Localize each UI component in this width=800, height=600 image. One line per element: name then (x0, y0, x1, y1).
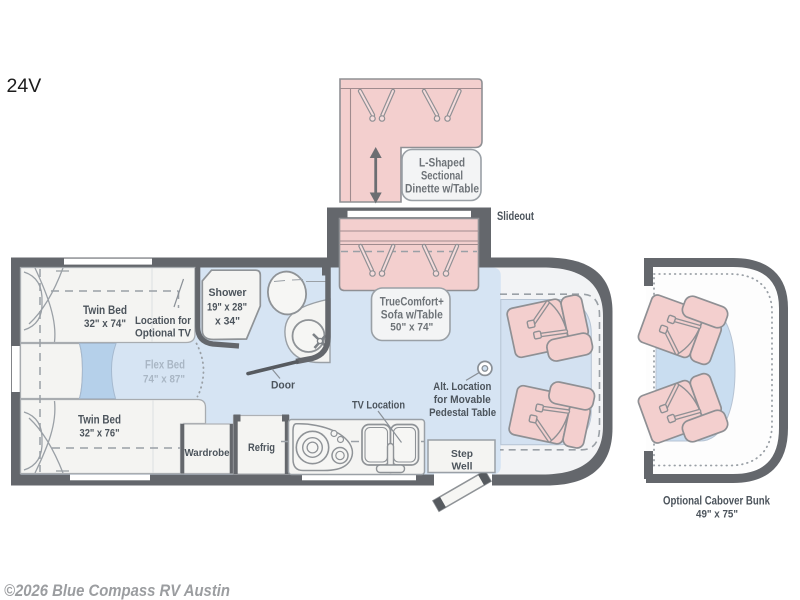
svg-text:Sofa w/Table: Sofa w/Table (381, 309, 443, 321)
svg-text:74" x 87": 74" x 87" (143, 374, 185, 386)
svg-text:Door: Door (271, 380, 296, 392)
svg-text:Optional Cabover Bunk: Optional Cabover Bunk (663, 496, 771, 508)
svg-text:Wardrobe: Wardrobe (185, 447, 230, 459)
svg-text:Pedestal Table: Pedestal Table (429, 407, 496, 419)
svg-text:50" x 74": 50" x 74" (390, 322, 433, 334)
svg-text:L-Shaped: L-Shaped (419, 156, 465, 170)
svg-text:24V: 24V (7, 75, 42, 97)
svg-text:32" x 74": 32" x 74" (84, 318, 126, 330)
svg-text:Step: Step (451, 448, 473, 460)
svg-text:Flex Bed: Flex Bed (145, 360, 185, 372)
svg-text:©2026 Blue Compass RV Austin: ©2026 Blue Compass RV Austin (4, 581, 230, 600)
svg-text:Refrig: Refrig (248, 442, 275, 454)
svg-text:Twin Bed: Twin Bed (83, 305, 127, 317)
svg-text:19" x 28": 19" x 28" (207, 302, 247, 314)
svg-text:Dinette w/Table: Dinette w/Table (405, 182, 479, 196)
svg-text:TrueComfort+: TrueComfort+ (380, 296, 444, 308)
svg-text:for Movable: for Movable (434, 394, 491, 406)
svg-text:Location for: Location for (135, 315, 192, 327)
svg-text:Slideout: Slideout (497, 211, 534, 223)
svg-text:Well: Well (452, 461, 473, 473)
svg-text:32" x 76": 32" x 76" (80, 428, 120, 440)
svg-text:Optional TV: Optional TV (135, 328, 192, 340)
svg-text:49" x 75": 49" x 75" (696, 509, 738, 521)
svg-text:x 34": x 34" (215, 316, 240, 328)
svg-text:Twin Bed: Twin Bed (78, 415, 121, 427)
svg-text:Sectional: Sectional (421, 169, 463, 183)
svg-text:Alt. Location: Alt. Location (433, 381, 491, 393)
svg-text:TV Location: TV Location (352, 400, 405, 412)
svg-text:Shower: Shower (209, 287, 248, 299)
